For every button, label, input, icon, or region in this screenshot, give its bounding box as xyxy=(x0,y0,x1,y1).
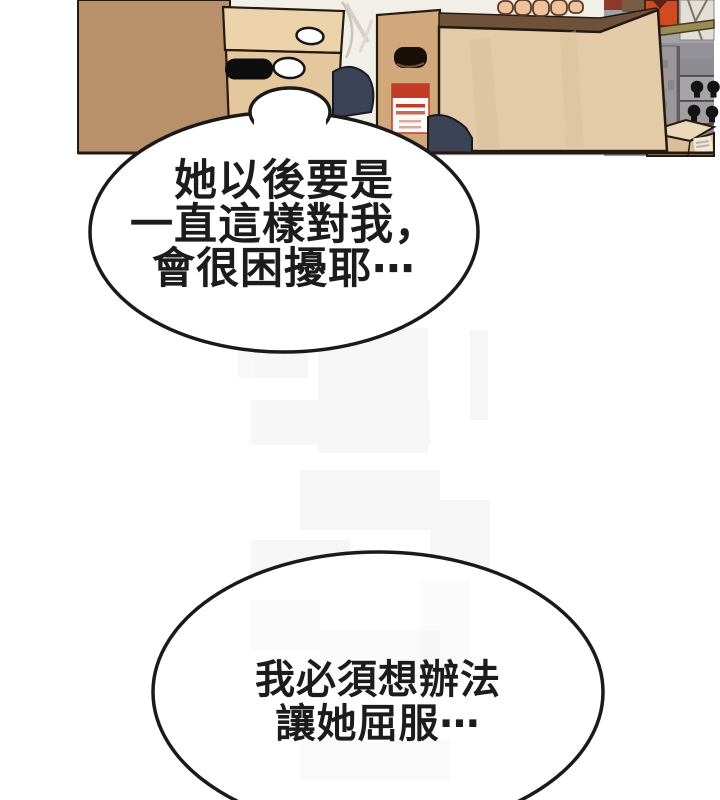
finger xyxy=(569,1,583,13)
bubble-1-line-1: 她以後要是 xyxy=(94,159,474,203)
finger xyxy=(551,0,567,15)
pillar-mottle xyxy=(663,60,668,68)
bubble-2-line-2: 讓她屈服⋯ xyxy=(158,702,598,746)
finger xyxy=(498,1,513,14)
speech-bubble-2-text: 我必須想辦法 讓她屈服⋯ xyxy=(158,658,598,746)
small-box-label xyxy=(693,136,713,153)
label-text-line xyxy=(399,126,421,129)
comic-panel: 她以後要是 一直這樣對我， 會很困擾耶⋯ 我必須想辦法 讓她屈服⋯ xyxy=(0,0,720,800)
bubble-1-line-2: 一直這樣對我， xyxy=(94,203,474,247)
label-text-line xyxy=(399,120,421,123)
label-text-line xyxy=(396,104,425,108)
bubble-junction-mask xyxy=(254,105,326,143)
bubble-2-line-1: 我必須想辦法 xyxy=(158,658,598,702)
speech-bubble-1-text: 她以後要是 一直這樣對我， 會很困擾耶⋯ xyxy=(94,159,474,291)
carton-seam xyxy=(680,75,714,77)
pillar-mottle xyxy=(668,80,674,90)
carton-seam xyxy=(680,100,714,102)
finger xyxy=(533,0,549,16)
large-box xyxy=(439,8,667,151)
label-text-line xyxy=(396,111,425,115)
shipping-label-stripe xyxy=(392,84,429,98)
trousers-left xyxy=(333,67,373,118)
box-handle-hole xyxy=(273,57,305,79)
box-slot-shadow xyxy=(225,59,273,80)
middle-box-lid xyxy=(223,7,344,53)
bubble-1-line-3: 會很困擾耶⋯ xyxy=(94,247,474,291)
finger xyxy=(515,0,531,15)
red-box-sliver xyxy=(604,0,623,10)
